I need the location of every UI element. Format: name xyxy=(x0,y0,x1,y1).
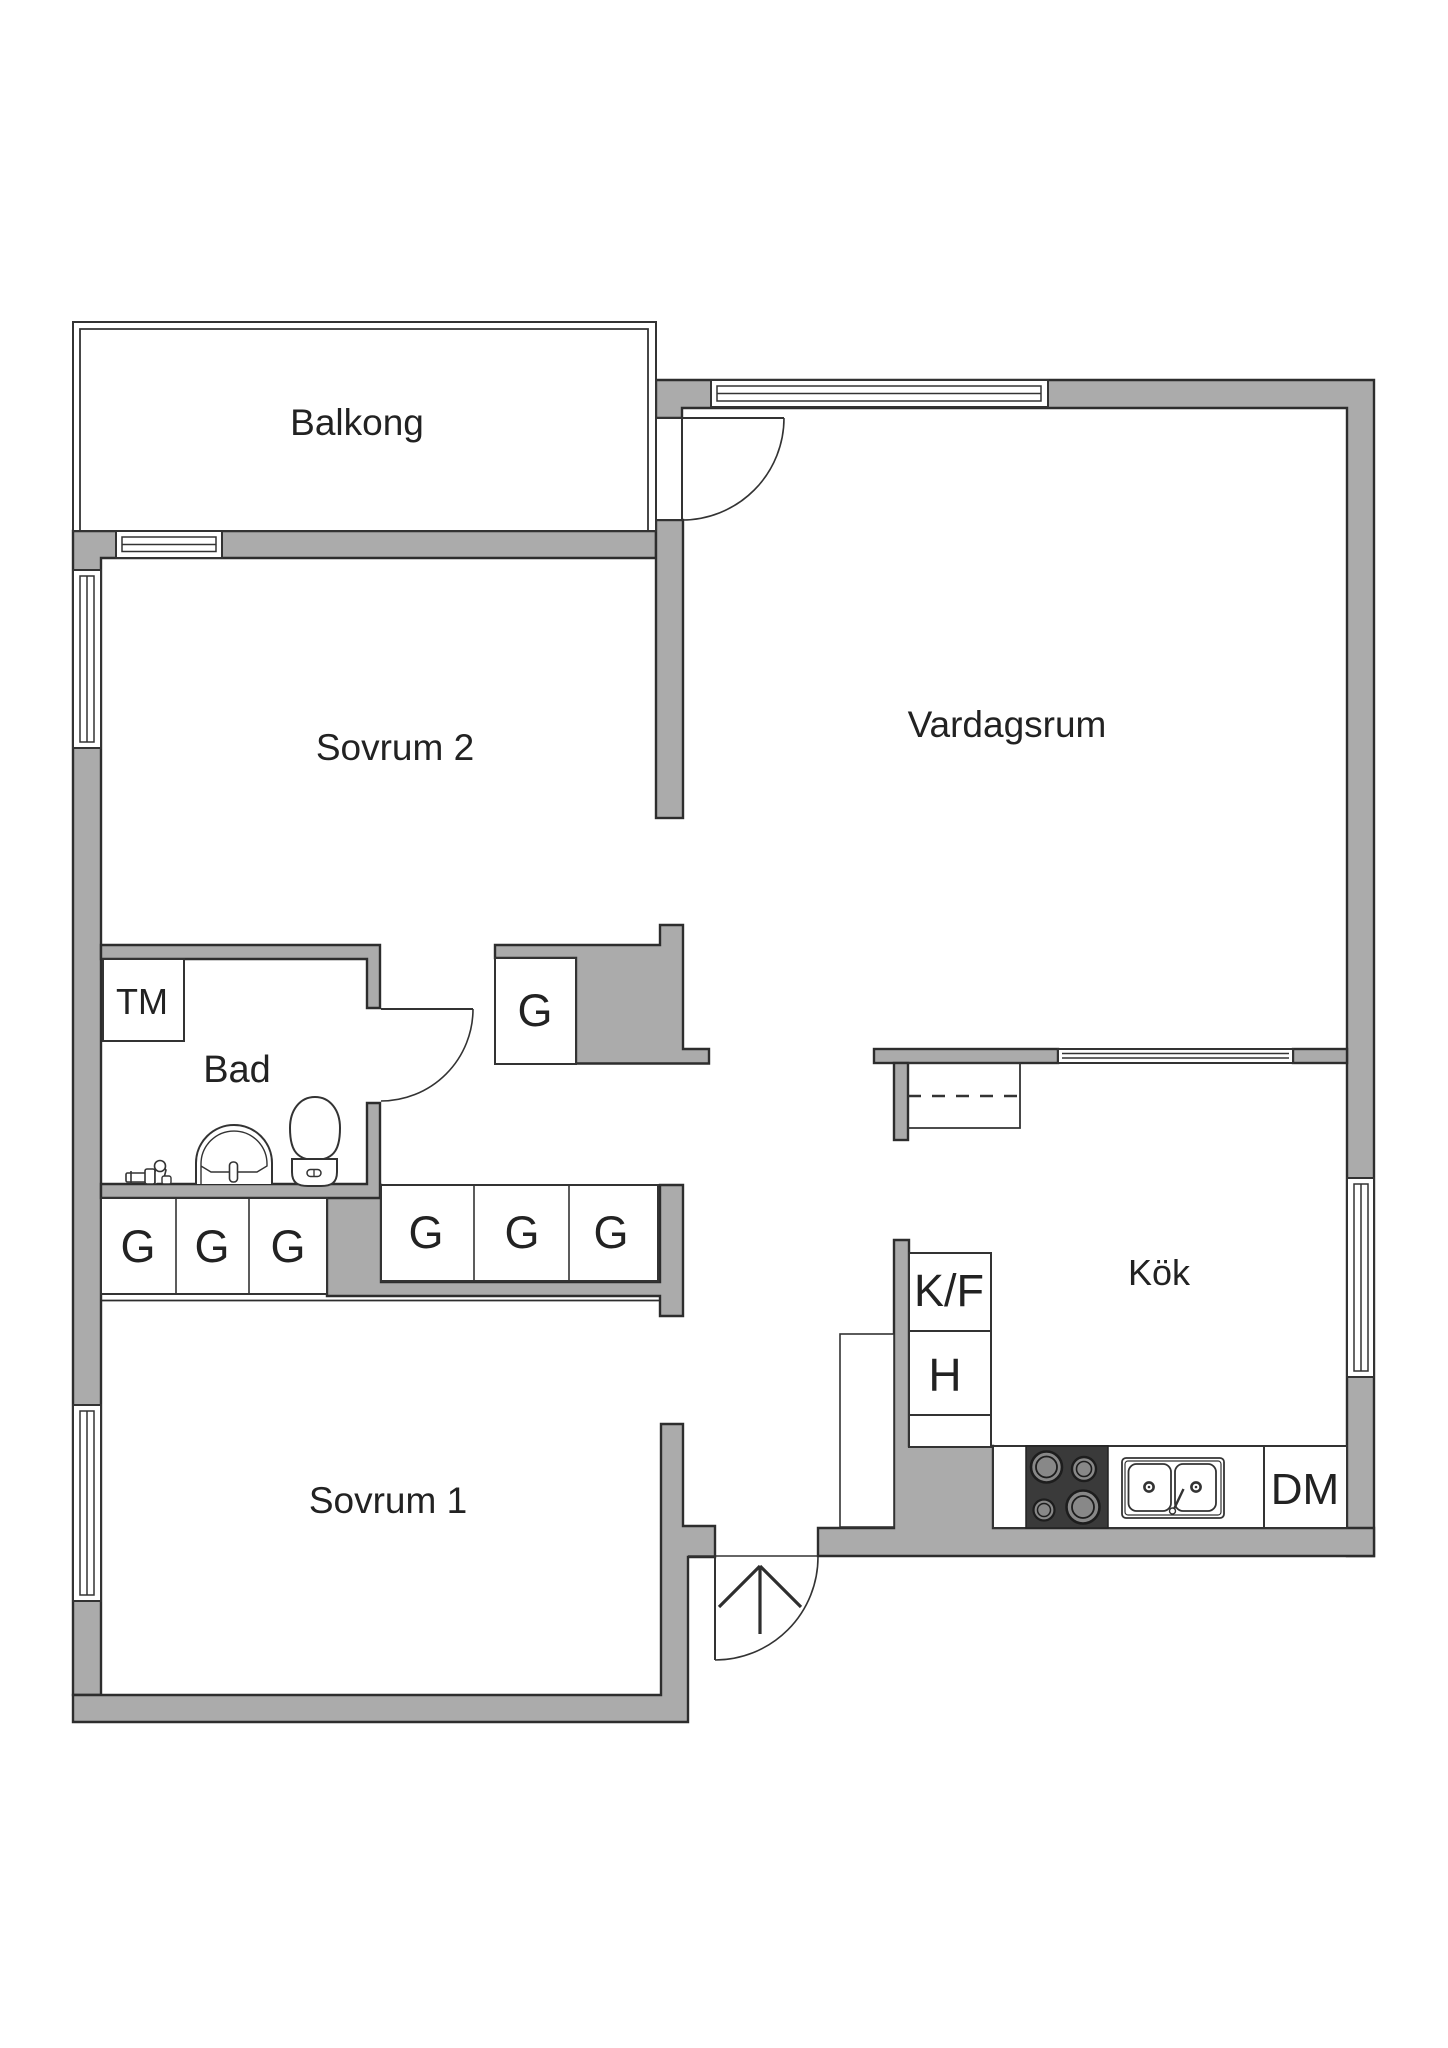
svg-text:TM: TM xyxy=(116,981,168,1022)
svg-text:Balkong: Balkong xyxy=(290,402,424,443)
svg-text:G: G xyxy=(593,1207,628,1258)
svg-text:K/F: K/F xyxy=(914,1265,984,1316)
svg-text:DM: DM xyxy=(1271,1465,1339,1514)
svg-text:Sovrum 2: Sovrum 2 xyxy=(316,727,474,768)
svg-text:G: G xyxy=(270,1221,305,1272)
svg-text:G: G xyxy=(517,985,552,1036)
svg-text:Kök: Kök xyxy=(1128,1252,1191,1293)
svg-text:G: G xyxy=(194,1221,229,1272)
svg-text:G: G xyxy=(504,1207,539,1258)
svg-text:Vardagsrum: Vardagsrum xyxy=(908,704,1107,745)
svg-text:H: H xyxy=(928,1349,961,1401)
svg-text:Sovrum 1: Sovrum 1 xyxy=(309,1480,467,1521)
svg-text:G: G xyxy=(408,1207,443,1258)
svg-text:Bad: Bad xyxy=(203,1049,271,1091)
svg-text:G: G xyxy=(120,1221,155,1272)
